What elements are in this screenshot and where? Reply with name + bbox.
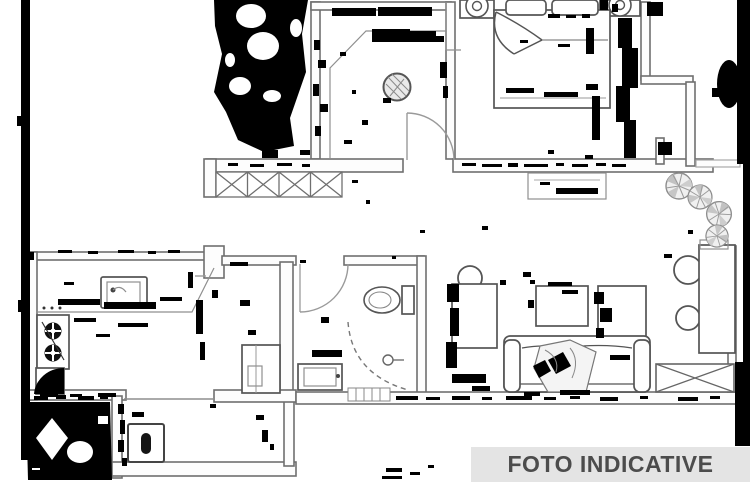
banner-label: FOTO INDICATIVE [508,451,714,478]
laundry-room [128,424,164,462]
floor-plan-page: { "banner": { "label": "FOTO INDICATIVE"… [0,0,750,482]
scan-blobs [17,0,750,480]
hall-closet [528,173,606,199]
round-hatched-table [384,74,411,101]
threshold-hatch [348,388,390,401]
shower-drain-icon [383,355,393,365]
round-chair [676,306,700,330]
bathroom [298,264,414,401]
hatched-window-sill [656,364,734,392]
kitchen [34,268,280,394]
foto-indicative-banner: FOTO INDICATIVE [471,447,750,482]
lamp-icon [466,0,488,17]
pillow [552,0,598,15]
round-chair [674,256,702,284]
floor-plan-drawing [0,0,750,482]
sofa [504,336,650,392]
dining-table [699,245,735,353]
burner-icon [45,345,62,362]
hatched-wardrobe [216,172,342,197]
pillow [506,0,546,15]
bathroom-door-arc [300,264,348,312]
toilet [364,286,414,314]
shower-tray [348,322,408,390]
scan-noise [30,0,720,479]
balcony-plants [666,173,733,251]
